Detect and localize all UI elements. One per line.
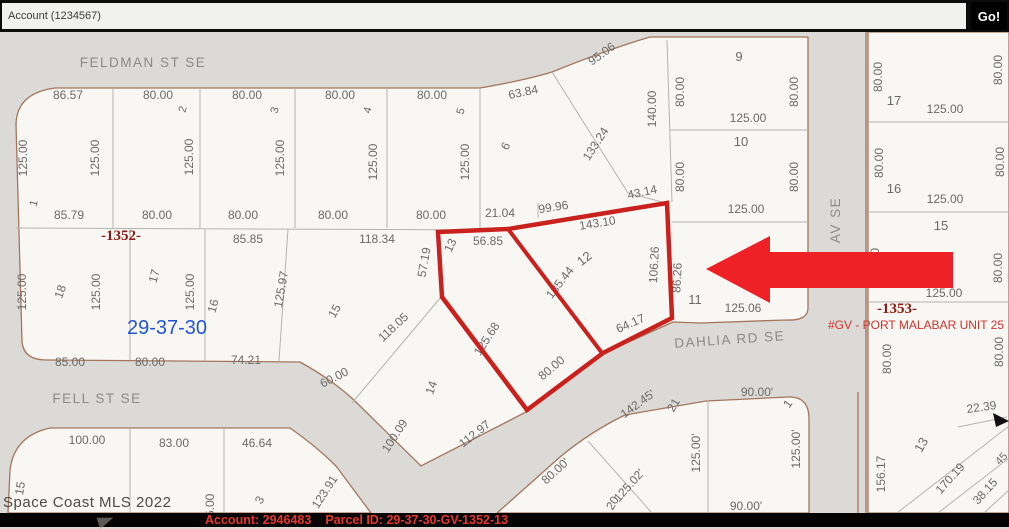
dimension-label: 80.00 [871,62,885,92]
dimension-label: 85.00 [55,355,85,369]
street-label: AV SE [828,197,843,243]
dimension-label: 156.17 [874,455,888,492]
dimension-label: 86.57 [53,88,83,102]
dimension-label: 125.00 [16,139,30,176]
dimension-label: 80.00 [993,147,1007,177]
street-label: FELDMAN ST SE [80,55,207,70]
go-button[interactable]: Go! [971,2,1007,30]
dimension-label: 80.00 [325,88,355,102]
dimension-label: 125.00 [15,273,29,310]
dimension-label: 80.00 [142,208,172,222]
dimension-label: 118.34 [359,232,395,246]
status-text: Account: 2946483Parcel ID: 29-37-30-GV-1… [205,513,522,527]
dimension-label: 125.00 [273,139,287,176]
dimension-label: 100.00 [69,433,106,447]
dimension-label: 125.00 [927,192,964,206]
dimension-label: 10 [734,134,748,149]
plat-map-container: FELDMAN ST SEFELL ST SEDAHLIA RD SEAV SE… [0,32,1009,513]
dimension-label: 80.00 [232,88,262,102]
subdivision-label: #GV - PORT MALABAR UNIT 25 [828,318,1004,332]
status-account: Account: 2946483 [205,513,311,527]
dimension-label: 125.00 [728,202,765,216]
dimension-label: 80.00 [880,344,894,374]
dimension-label: 46.64 [242,436,272,450]
dimension-label: 80.00 [991,55,1005,85]
dimension-label: 125.00 [203,493,217,513]
dimension-label: 80.00 [417,88,447,102]
section-township-range-label: 29-37-30 [127,317,207,339]
dimension-label: 80.00 [318,208,348,222]
dimension-label: 125.00 [182,138,196,175]
dimension-label: 80.00 [787,162,801,192]
dimension-label: 140.00 [645,90,659,127]
dimension-label: 125.00 [730,111,767,125]
dimension-label: 85.79 [54,208,84,222]
dimension-label: 83.00 [159,436,189,450]
dimension-label: 106.26 [646,246,662,284]
dimension-label: 125.00 [183,273,197,310]
mls-watermark: Space Coast MLS 2022 [3,494,171,511]
dimension-label: 125.00' [689,434,703,473]
dimension-label: 80.00 [991,253,1005,283]
dimension-label: 90.00' [741,385,773,399]
block-number-label: -1353- [877,301,917,317]
dimension-label: 16 [887,181,901,196]
dimension-label: 74.21 [231,353,261,367]
dimension-label: 125.00 [89,273,103,310]
dimension-label: 56.85 [473,234,503,248]
dimension-label: 125.00' [789,430,803,469]
dimension-label: 90.00' [730,499,762,513]
dimension-label: 80.00 [228,208,258,222]
top-toolbar: Go! [0,0,1009,32]
plat-map[interactable]: FELDMAN ST SEFELL ST SEDAHLIA RD SEAV SE… [0,32,1009,513]
dimension-label: 80.00 [787,77,801,107]
dimension-label: 125.00 [926,286,963,300]
dimension-label: 80.00 [135,355,165,369]
status-bar: Account: 2946483Parcel ID: 29-37-30-GV-1… [0,513,1009,527]
dimension-label: 125.00 [927,102,964,116]
dimension-label: 85.85 [233,232,263,246]
dimension-label: 80.00 [143,88,173,102]
dimension-label: 17 [887,93,901,108]
dimension-label: 125.00 [458,143,472,180]
status-parcel-id: Parcel ID: 29-37-30-GV-1352-13 [325,513,508,527]
dimension-label: 125.06 [725,301,762,315]
street-label: FELL ST SE [52,391,141,406]
dimension-label: 80.00 [673,162,687,192]
dimension-label: 125.00 [366,143,380,180]
dimension-label: 11 [688,292,702,307]
dimension-label: 80.00 [673,77,687,107]
dimension-label: 15 [934,218,948,233]
account-input[interactable] [2,3,966,29]
dimension-label: 80.00 [872,148,886,178]
dimension-label: 80.00 [992,337,1006,367]
dimension-label: 80.00 [416,208,446,222]
dimension-label: 21.04 [485,206,515,220]
dimension-label: 9 [735,49,742,64]
dimension-label: 125.00 [88,139,102,176]
block-number-label: -1352- [101,228,141,244]
